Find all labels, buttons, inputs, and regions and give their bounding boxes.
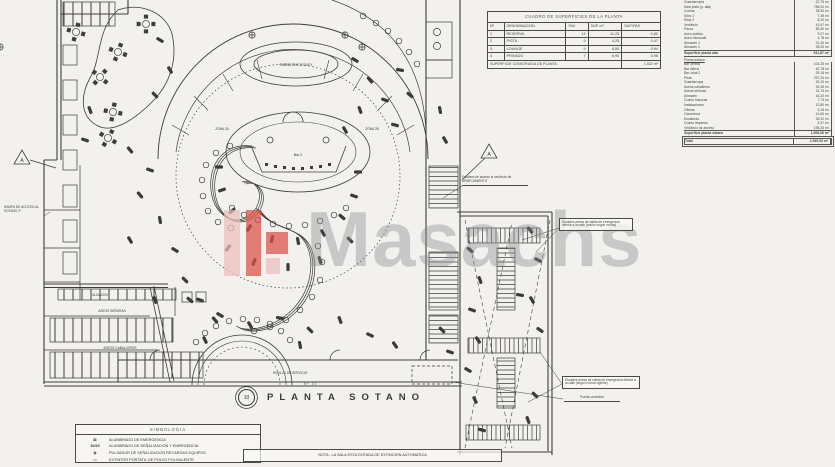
dance-floor [176,64,400,288]
bar-counter [211,146,315,332]
table-row: 2 PISTA 9 4,25 0,47 [488,38,661,46]
area-subtotal-1: Superficie planta alta 941,87 m² [684,50,832,57]
legend-label: ALUMBRADO DE SEÑALIZACION Y EMERGENCIA [109,444,198,448]
svg-text:ALMACEN: ALMACEN [92,293,108,297]
annotation-emergency-stair-bottom: Escalera anexa de salida de emergencia d… [562,376,640,389]
title-block: 10 Nº 10 PLANTA SOTANO [238,389,425,406]
table-row: 4 PRIVADO 7 6,90 0,98 [488,53,661,61]
legend-symbol-icon: ⊠ [86,438,104,442]
svg-text:CABINA DISCJOCKEY: CABINA DISCJOCKEY [280,63,314,67]
column-header: SUP. m² [588,23,622,31]
scanned-floor-plan-page: A A [0,0,835,467]
annotation-ramp: RAMPA DE ACCESO AL SOTANO 2º [4,206,50,214]
legend-row: ◉ PULSADOR DE SEÑALIZACION RECARGAS EQUI… [76,449,260,456]
column-header: SUP./PAX [622,23,661,31]
table-row: 1 RESERVA 14 11,25 0,80 [488,30,661,38]
surface-summary-table: CUADRO DE SUPERFICIES DE LA PLANTA NºDEN… [487,11,661,69]
svg-text:ASEOS SEÑORAS: ASEOS SEÑORAS [98,308,125,313]
annotation-parking-stair: Escalera de acceso al vestíbulo de APARC… [462,176,528,186]
area-rows-lower: Bar central 104,25 m² Bar lateral 40,78 … [684,62,832,130]
legend: SIMBOLOGIA ⊠ ALUMBRADO DE EMERGENCIA 10/… [75,424,261,463]
balcony-arc [158,24,428,159]
surface-table-columns: NºDENOMINACIONPAXSUP. m²SUP./PAX [488,23,661,31]
legend-label: EXTINTOR PORTATIL DE POLVO POLIVALENTE [109,458,194,462]
surface-table-footer: SUPERFICIE CONSTRUIDA DE PLANTA 1.522 m² [488,60,661,68]
column-header: DENOMINACION [504,23,566,31]
svg-text:Bar 2: Bar 2 [294,153,303,157]
legend-symbol-icon: 10/20 [86,444,104,448]
area-total: Total 1.949,93 m² [684,138,832,145]
walls [44,0,552,455]
column-header: PAX [566,23,588,31]
restrooms-block [50,289,206,378]
svg-text:ZONA 2A: ZONA 2A [215,127,229,131]
legend-header: SIMBOLOGIA [76,425,260,435]
tables-4-seats [65,15,156,151]
table-row: 3 LOUNGE 9 8,50 0,94 [488,45,661,53]
legend-label: ALUMBRADO DE EMERGENCIA [109,438,166,442]
svg-text:A: A [487,152,491,158]
svg-text:A: A [20,158,24,164]
legend-row: 10/20 ALUMBRADO DE SEÑALIZACION Y EMERGE… [76,442,260,449]
legend-row: ⊠ ALUMBRADO DE EMERGENCIA [76,435,260,442]
page-title: PLANTA SOTANO [267,392,425,403]
area-schedule: Guardarropía 22,75 m² Sala pista (p. alt… [684,0,832,145]
legend-row: ▭ EXTINTOR PORTATIL DE POLVO POLIVALENTE [76,455,260,462]
note-box: NOTA : LA SALA ESTA DOTADA DE EXTINCION … [243,449,502,462]
svg-text:ZONA 2B: ZONA 2B [365,127,378,131]
area-subtotal-2: Superficie planta sótano 1.008,06 m² [684,130,832,137]
legend-symbol-icon: ◉ [86,451,104,455]
legend-label: PULSADOR DE SEÑALIZACION RECARGAS EQUIPO… [109,451,206,455]
annotation-emergency-stair-top: Escalera anexa de salida de emergencia d… [559,218,633,231]
area-rows-upper: Guardarropía 22,75 m² Sala pista (p. alt… [684,0,832,50]
annotation-sliding-door: Puerta corredera [564,396,620,402]
column-header: Nº [488,23,505,31]
stairs [429,166,540,440]
surface-table-body: 1 RESERVA 14 11,25 0,80 2 PISTA 9 4,25 0… [488,30,661,60]
legend-symbol-icon: ▭ [86,458,104,462]
surface-table-header: CUADRO DE SUPERFICIES DE LA PLANTA [487,11,661,22]
legend-rows: ⊠ ALUMBRADO DE EMERGENCIA 10/20 ALUMBRAD… [76,435,260,462]
section-markers: A A [14,144,497,180]
drawing-number-marker: 10 [238,389,255,406]
svg-text:ASEOS CABALLEROS: ASEOS CABALLEROS [103,346,136,350]
svg-text:PASILLO DE SERVICIO: PASILLO DE SERVICIO [273,371,308,375]
title-prefix: Nº 10 [304,382,317,386]
